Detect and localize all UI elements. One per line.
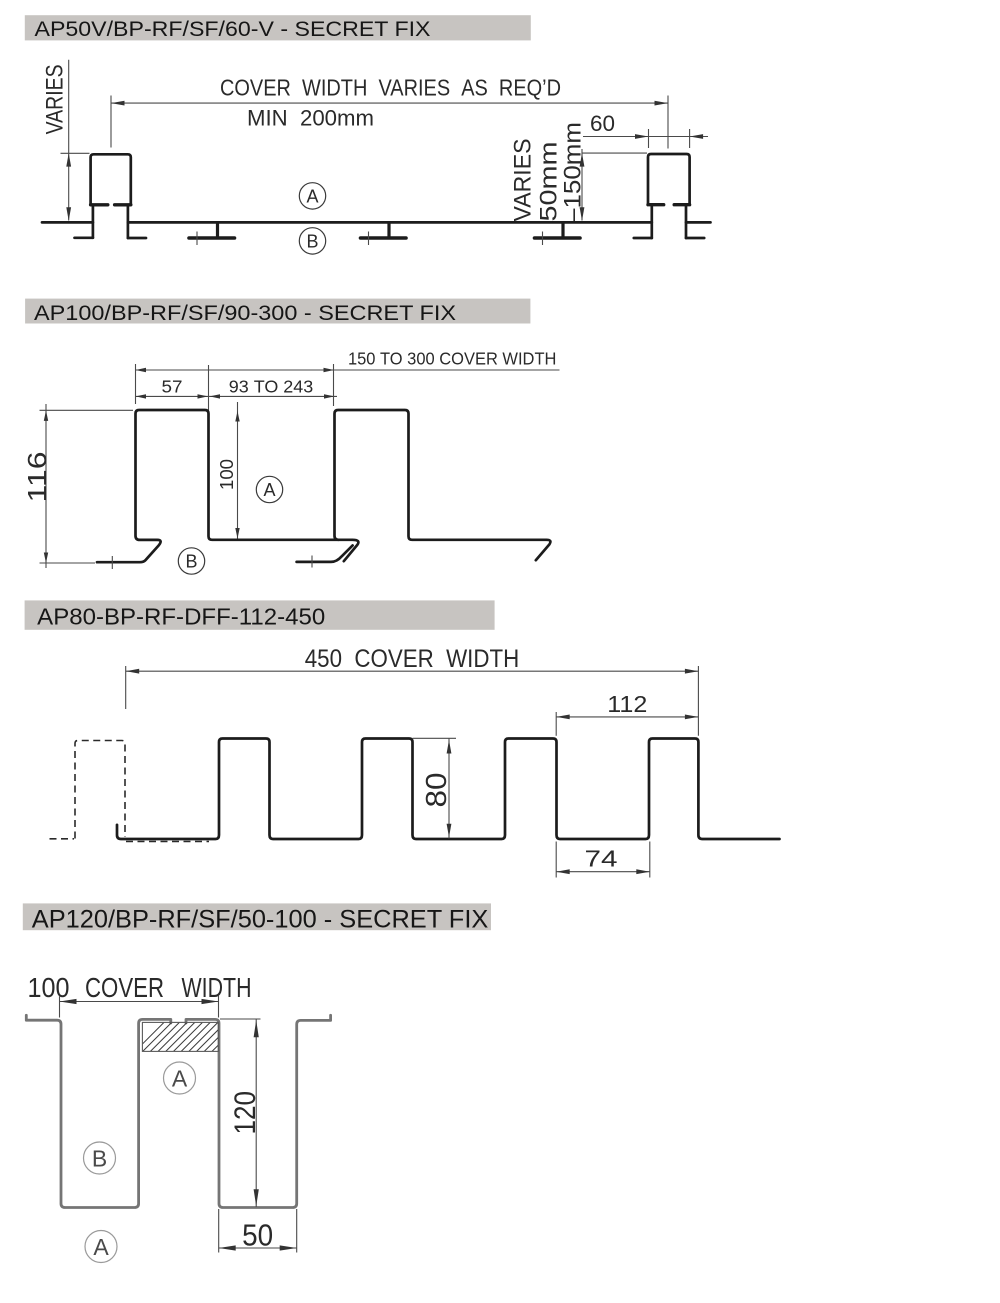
svg-text:AP100/BP-RF/SF/90-300 - SECRET: AP100/BP-RF/SF/90-300 - SECRET FIX: [34, 301, 456, 325]
svg-text:100: 100: [216, 459, 237, 490]
svg-text:B: B: [92, 1145, 107, 1171]
svg-text:MIN 200mm: MIN 200mm: [247, 106, 374, 131]
svg-text:100: 100: [28, 972, 70, 1003]
svg-text:COVER WIDTH VARIES AS REQ’: COVER WIDTH VARIES AS REQ’D: [220, 74, 561, 100]
svg-text:116: 116: [24, 452, 52, 503]
svg-text:WIDTH: WIDTH: [182, 972, 252, 1003]
svg-text:50mm: 50mm: [536, 142, 563, 222]
svg-text:AP120/BP-RF/SF/50-100 - SECRET: AP120/BP-RF/SF/50-100 - SECRET FIX: [32, 906, 488, 933]
svg-text:A: A: [172, 1065, 188, 1091]
svg-text:120: 120: [229, 1091, 262, 1135]
svg-text:COVER: COVER: [85, 972, 164, 1003]
svg-text:B: B: [306, 231, 318, 251]
svg-text:60: 60: [590, 111, 615, 136]
svg-text:A: A: [306, 186, 318, 206]
svg-text:AP80-BP-RF-DFF-112-450: AP80-BP-RF-DFF-112-450: [37, 604, 325, 630]
svg-text:AP50V/BP-RF/SF/60-V - SECRET F: AP50V/BP-RF/SF/60-V - SECRET FIX: [35, 17, 431, 41]
svg-text:A: A: [93, 1234, 109, 1260]
svg-text:74: 74: [585, 846, 618, 872]
svg-text:450 COVER WIDTH: 450 COVER WIDTH: [305, 645, 520, 673]
svg-text:VARIES: VARIES: [42, 64, 69, 134]
svg-text:VARIES: VARIES: [510, 139, 537, 222]
svg-text:A: A: [263, 480, 275, 500]
svg-text:80: 80: [421, 773, 453, 808]
svg-text:57: 57: [162, 377, 183, 397]
svg-text:150 TO 300 COVER WIDTH: 150 TO 300 COVER WIDTH: [348, 349, 557, 369]
svg-text:112: 112: [607, 691, 647, 717]
svg-text:B: B: [185, 551, 197, 571]
svg-text:93 TO 243: 93 TO 243: [229, 377, 314, 397]
svg-text:50: 50: [242, 1219, 273, 1253]
